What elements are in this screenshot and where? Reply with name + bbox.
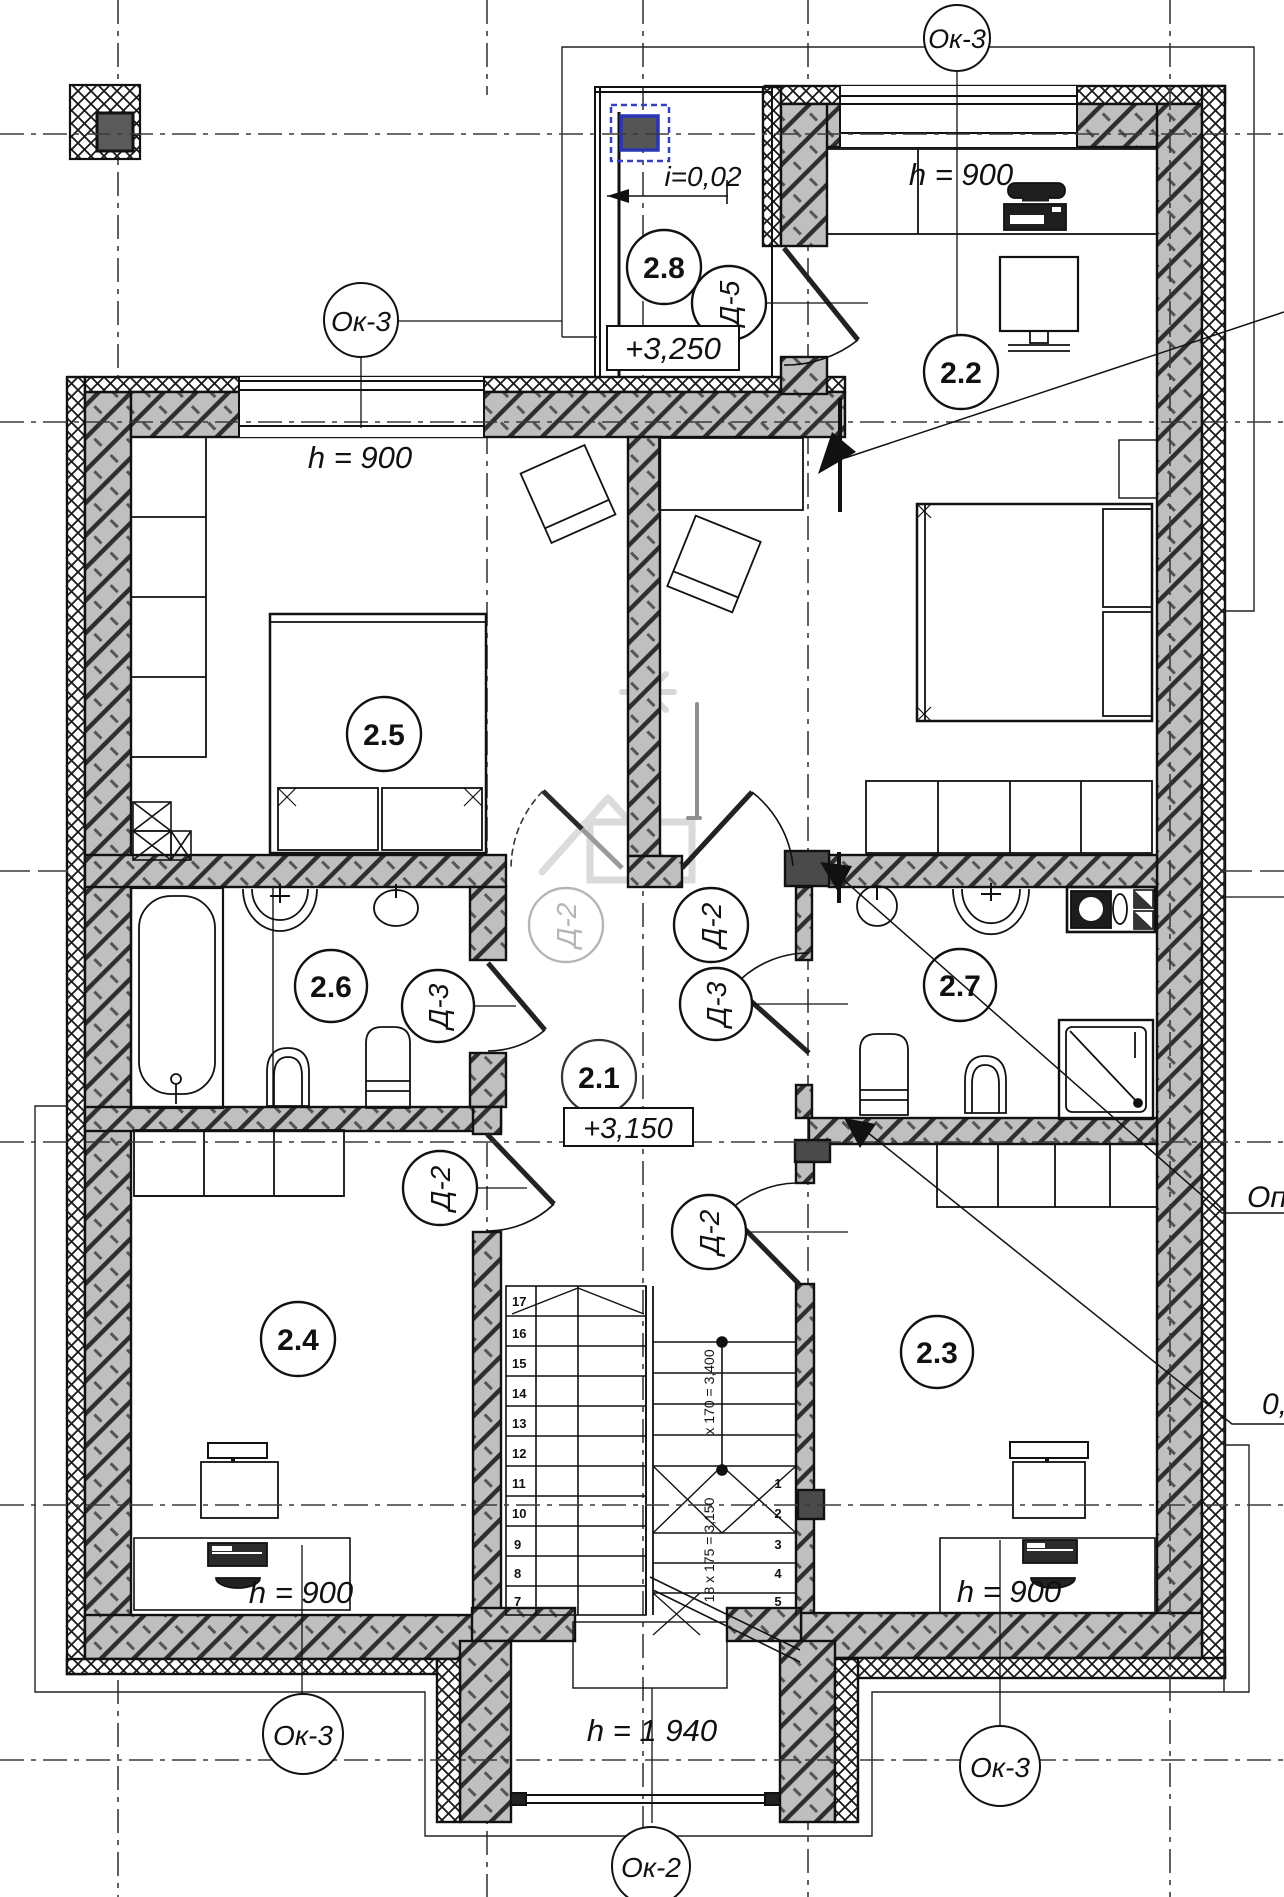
svg-text:2.2: 2.2 (940, 357, 982, 390)
svg-text:Д-5: Д-5 (714, 280, 745, 328)
svg-text:18 x 175 = 3,150: 18 x 175 = 3,150 (701, 1497, 717, 1602)
svg-text:16: 16 (512, 1326, 526, 1341)
svg-text:12: 12 (512, 1446, 526, 1461)
svg-text:Д-2: Д-2 (425, 1165, 456, 1213)
svg-text:17: 17 (512, 1294, 526, 1309)
svg-text:14: 14 (512, 1386, 527, 1401)
svg-text:2.8: 2.8 (643, 252, 685, 285)
svg-text:2.6: 2.6 (310, 971, 352, 1004)
svg-text:Д-3: Д-3 (423, 983, 454, 1031)
svg-text:13: 13 (512, 1416, 526, 1431)
svg-text:10: 10 (512, 1506, 526, 1521)
svg-text:Ок-3: Ок-3 (970, 1752, 1030, 1783)
svg-text:h = 900: h = 900 (308, 440, 412, 475)
svg-text:2: 2 (774, 1506, 781, 1521)
svg-text:Ок-2: Ок-2 (621, 1852, 681, 1883)
svg-text:Ок-3: Ок-3 (273, 1720, 333, 1751)
svg-text:2.1: 2.1 (578, 1062, 620, 1095)
svg-text:i=0,02: i=0,02 (664, 161, 741, 192)
svg-text:h = 900: h = 900 (957, 1574, 1061, 1609)
svg-text:Д-2: Д-2 (696, 902, 727, 950)
svg-text:Ок-3: Ок-3 (331, 306, 391, 337)
svg-text:2.7: 2.7 (939, 970, 981, 1003)
svg-text:9: 9 (514, 1537, 521, 1552)
svg-text:8: 8 (514, 1566, 521, 1581)
svg-text:h = 900: h = 900 (249, 1575, 353, 1610)
svg-text:x 170 = 3,400: x 170 = 3,400 (701, 1349, 717, 1434)
svg-text:2.5: 2.5 (363, 719, 405, 752)
svg-text:h = 1 940: h = 1 940 (587, 1713, 717, 1748)
svg-text:+3,250: +3,250 (625, 331, 721, 366)
svg-text:4: 4 (774, 1566, 782, 1581)
svg-text:Оп: Оп (1247, 1181, 1284, 1214)
svg-text:3: 3 (774, 1537, 781, 1552)
svg-text:Д-3: Д-3 (701, 981, 732, 1029)
svg-text:Ок-3: Ок-3 (928, 24, 986, 54)
svg-text:1: 1 (774, 1476, 781, 1491)
svg-text:h = 900: h = 900 (909, 157, 1013, 192)
svg-text:Д-2: Д-2 (551, 902, 582, 950)
svg-text:5: 5 (774, 1594, 781, 1609)
svg-text:2.3: 2.3 (916, 1337, 958, 1370)
svg-text:15: 15 (512, 1356, 526, 1371)
svg-text:0,: 0, (1262, 1388, 1284, 1421)
svg-text:Д-2: Д-2 (694, 1209, 725, 1257)
svg-text:11: 11 (512, 1476, 526, 1491)
svg-text:7: 7 (514, 1594, 521, 1609)
svg-text:+3,150: +3,150 (583, 1113, 673, 1145)
svg-text:2.4: 2.4 (277, 1324, 319, 1357)
